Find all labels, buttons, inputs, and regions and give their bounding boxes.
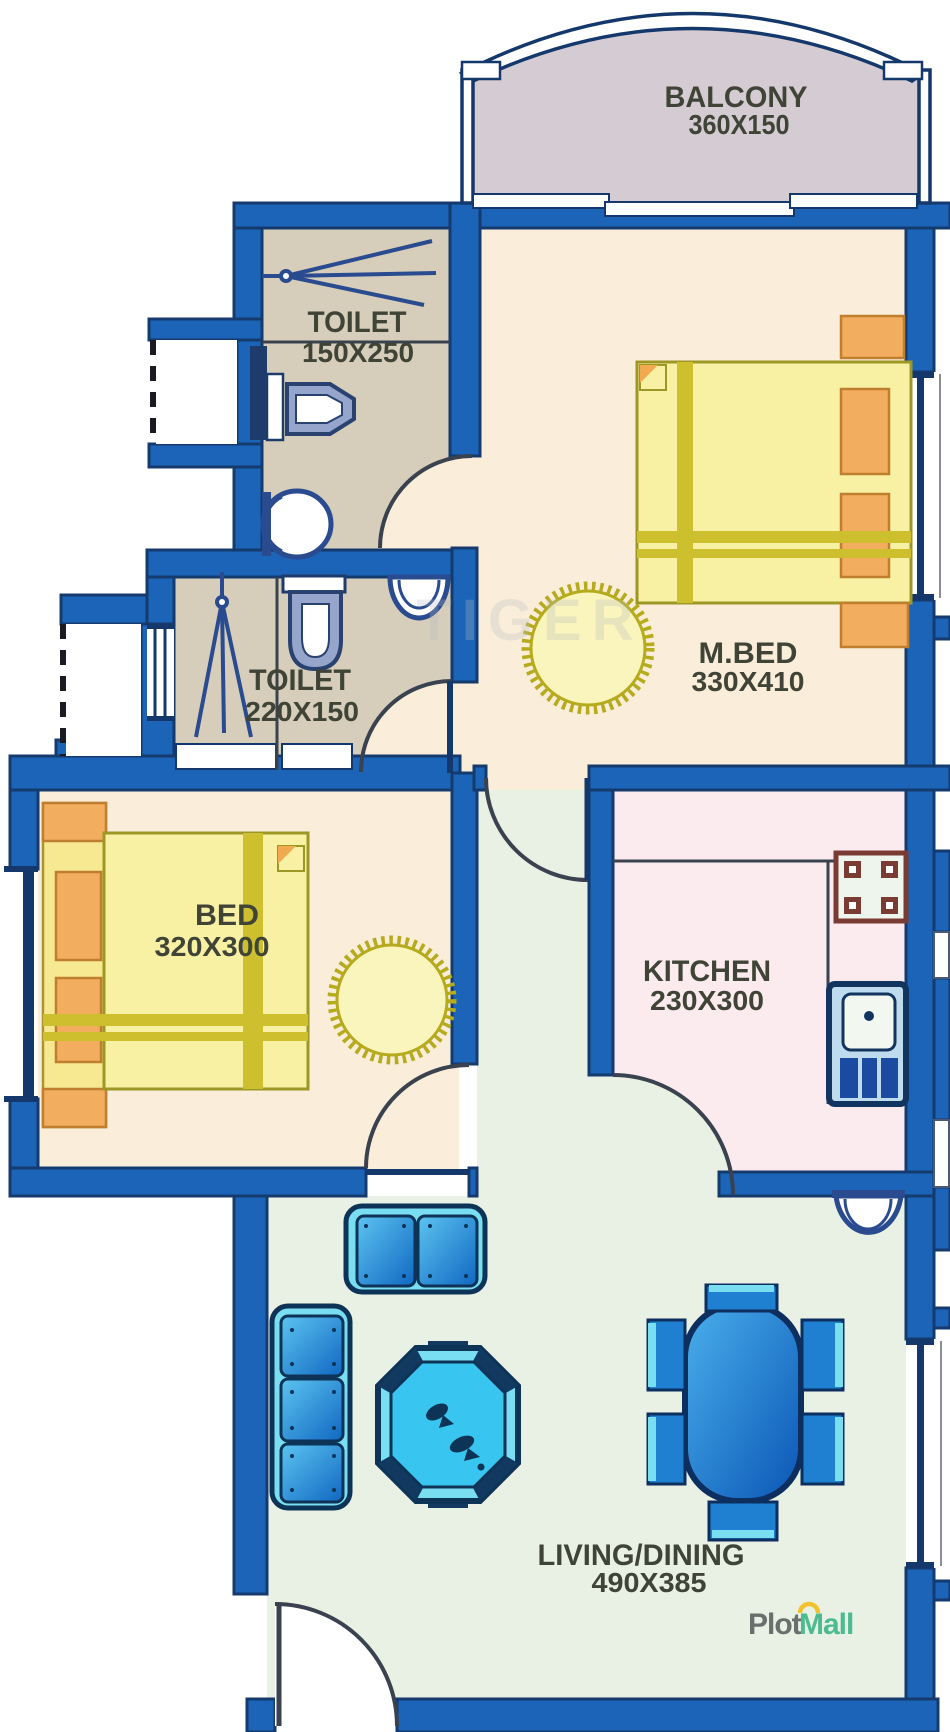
svg-text:Mall: Mall (799, 1608, 853, 1641)
svg-text:360X150: 360X150 (689, 109, 790, 140)
svg-text:Plot: Plot (748, 1608, 802, 1641)
svg-text:230X300: 230X300 (650, 985, 764, 1016)
svg-text:KITCHEN: KITCHEN (643, 955, 771, 988)
svg-text:220X150: 220X150 (245, 696, 359, 727)
svg-text:490X385: 490X385 (592, 1567, 707, 1598)
svg-text:320X300: 320X300 (155, 931, 270, 962)
svg-text:150X250: 150X250 (302, 337, 414, 368)
svg-text:BED: BED (195, 899, 259, 932)
svg-text:330X410: 330X410 (692, 666, 805, 697)
svg-text:TOILET: TOILET (249, 664, 351, 697)
svg-text:TIGER: TIGER (416, 588, 643, 653)
svg-text:TOILET: TOILET (308, 306, 407, 339)
